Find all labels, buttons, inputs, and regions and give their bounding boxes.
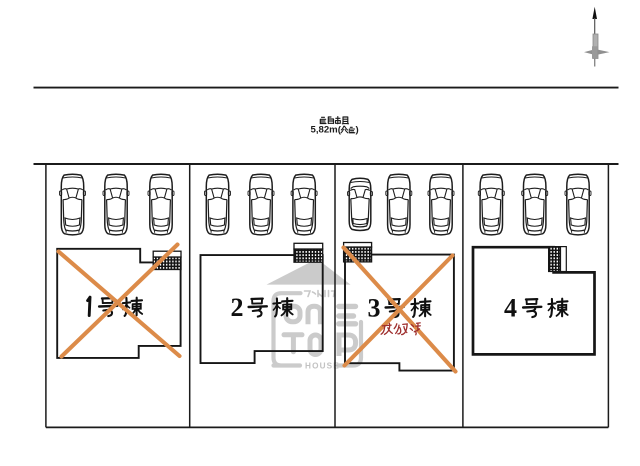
svg-text:5,82m(: 5,82m( [311, 125, 342, 136]
svg-text:): ) [356, 125, 359, 136]
svg-text:3: 3 [368, 293, 381, 322]
svg-text:4: 4 [504, 293, 517, 322]
svg-text:2: 2 [231, 293, 244, 322]
